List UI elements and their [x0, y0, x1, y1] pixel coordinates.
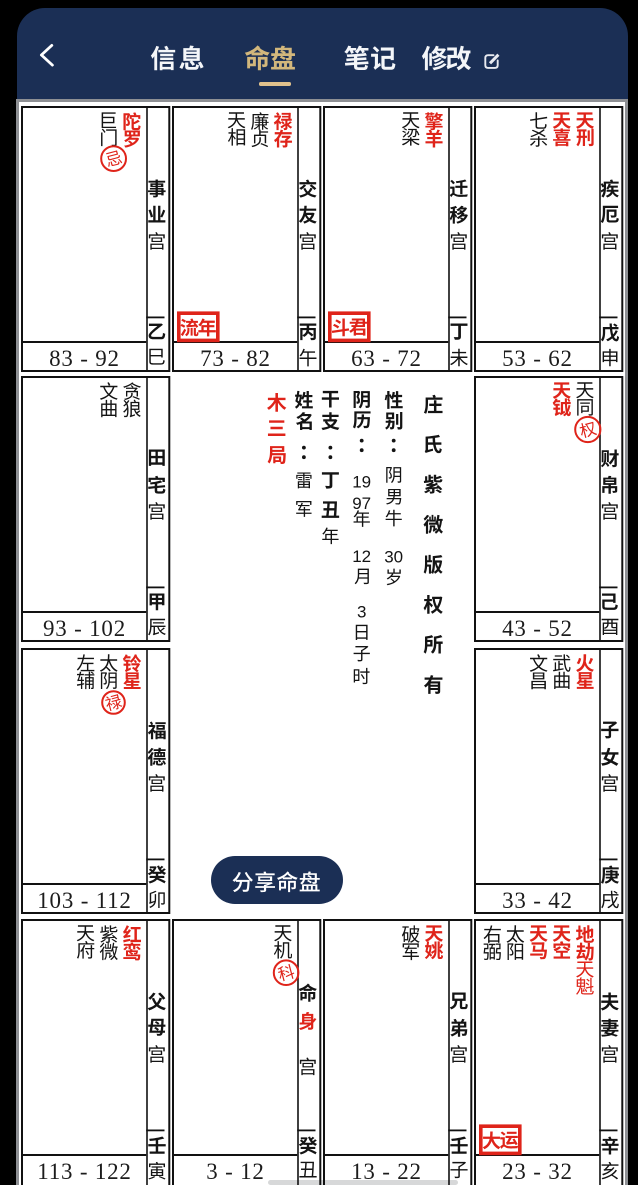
svg-text:97: 97 — [353, 494, 372, 513]
svg-text:33 - 42: 33 - 42 — [502, 887, 573, 912]
svg-text:23 - 32: 23 - 32 — [502, 1159, 573, 1184]
svg-text:43 - 52: 43 - 52 — [502, 615, 573, 640]
svg-text:93 - 102: 93 - 102 — [43, 615, 126, 640]
svg-text:19: 19 — [353, 472, 372, 491]
svg-text:83 - 92: 83 - 92 — [49, 346, 120, 371]
svg-text:63 - 72: 63 - 72 — [351, 346, 422, 371]
svg-text:103 - 112: 103 - 112 — [38, 887, 132, 912]
svg-text:53 - 62: 53 - 62 — [502, 346, 573, 371]
svg-text:113 - 122: 113 - 122 — [38, 1159, 132, 1184]
svg-text:73 - 82: 73 - 82 — [200, 346, 271, 371]
svg-text:12: 12 — [353, 546, 372, 565]
svg-text:13 - 22: 13 - 22 — [351, 1159, 422, 1184]
svg-text:30: 30 — [385, 547, 404, 566]
svg-text:3 - 12: 3 - 12 — [207, 1159, 265, 1184]
svg-text:3: 3 — [357, 602, 366, 621]
